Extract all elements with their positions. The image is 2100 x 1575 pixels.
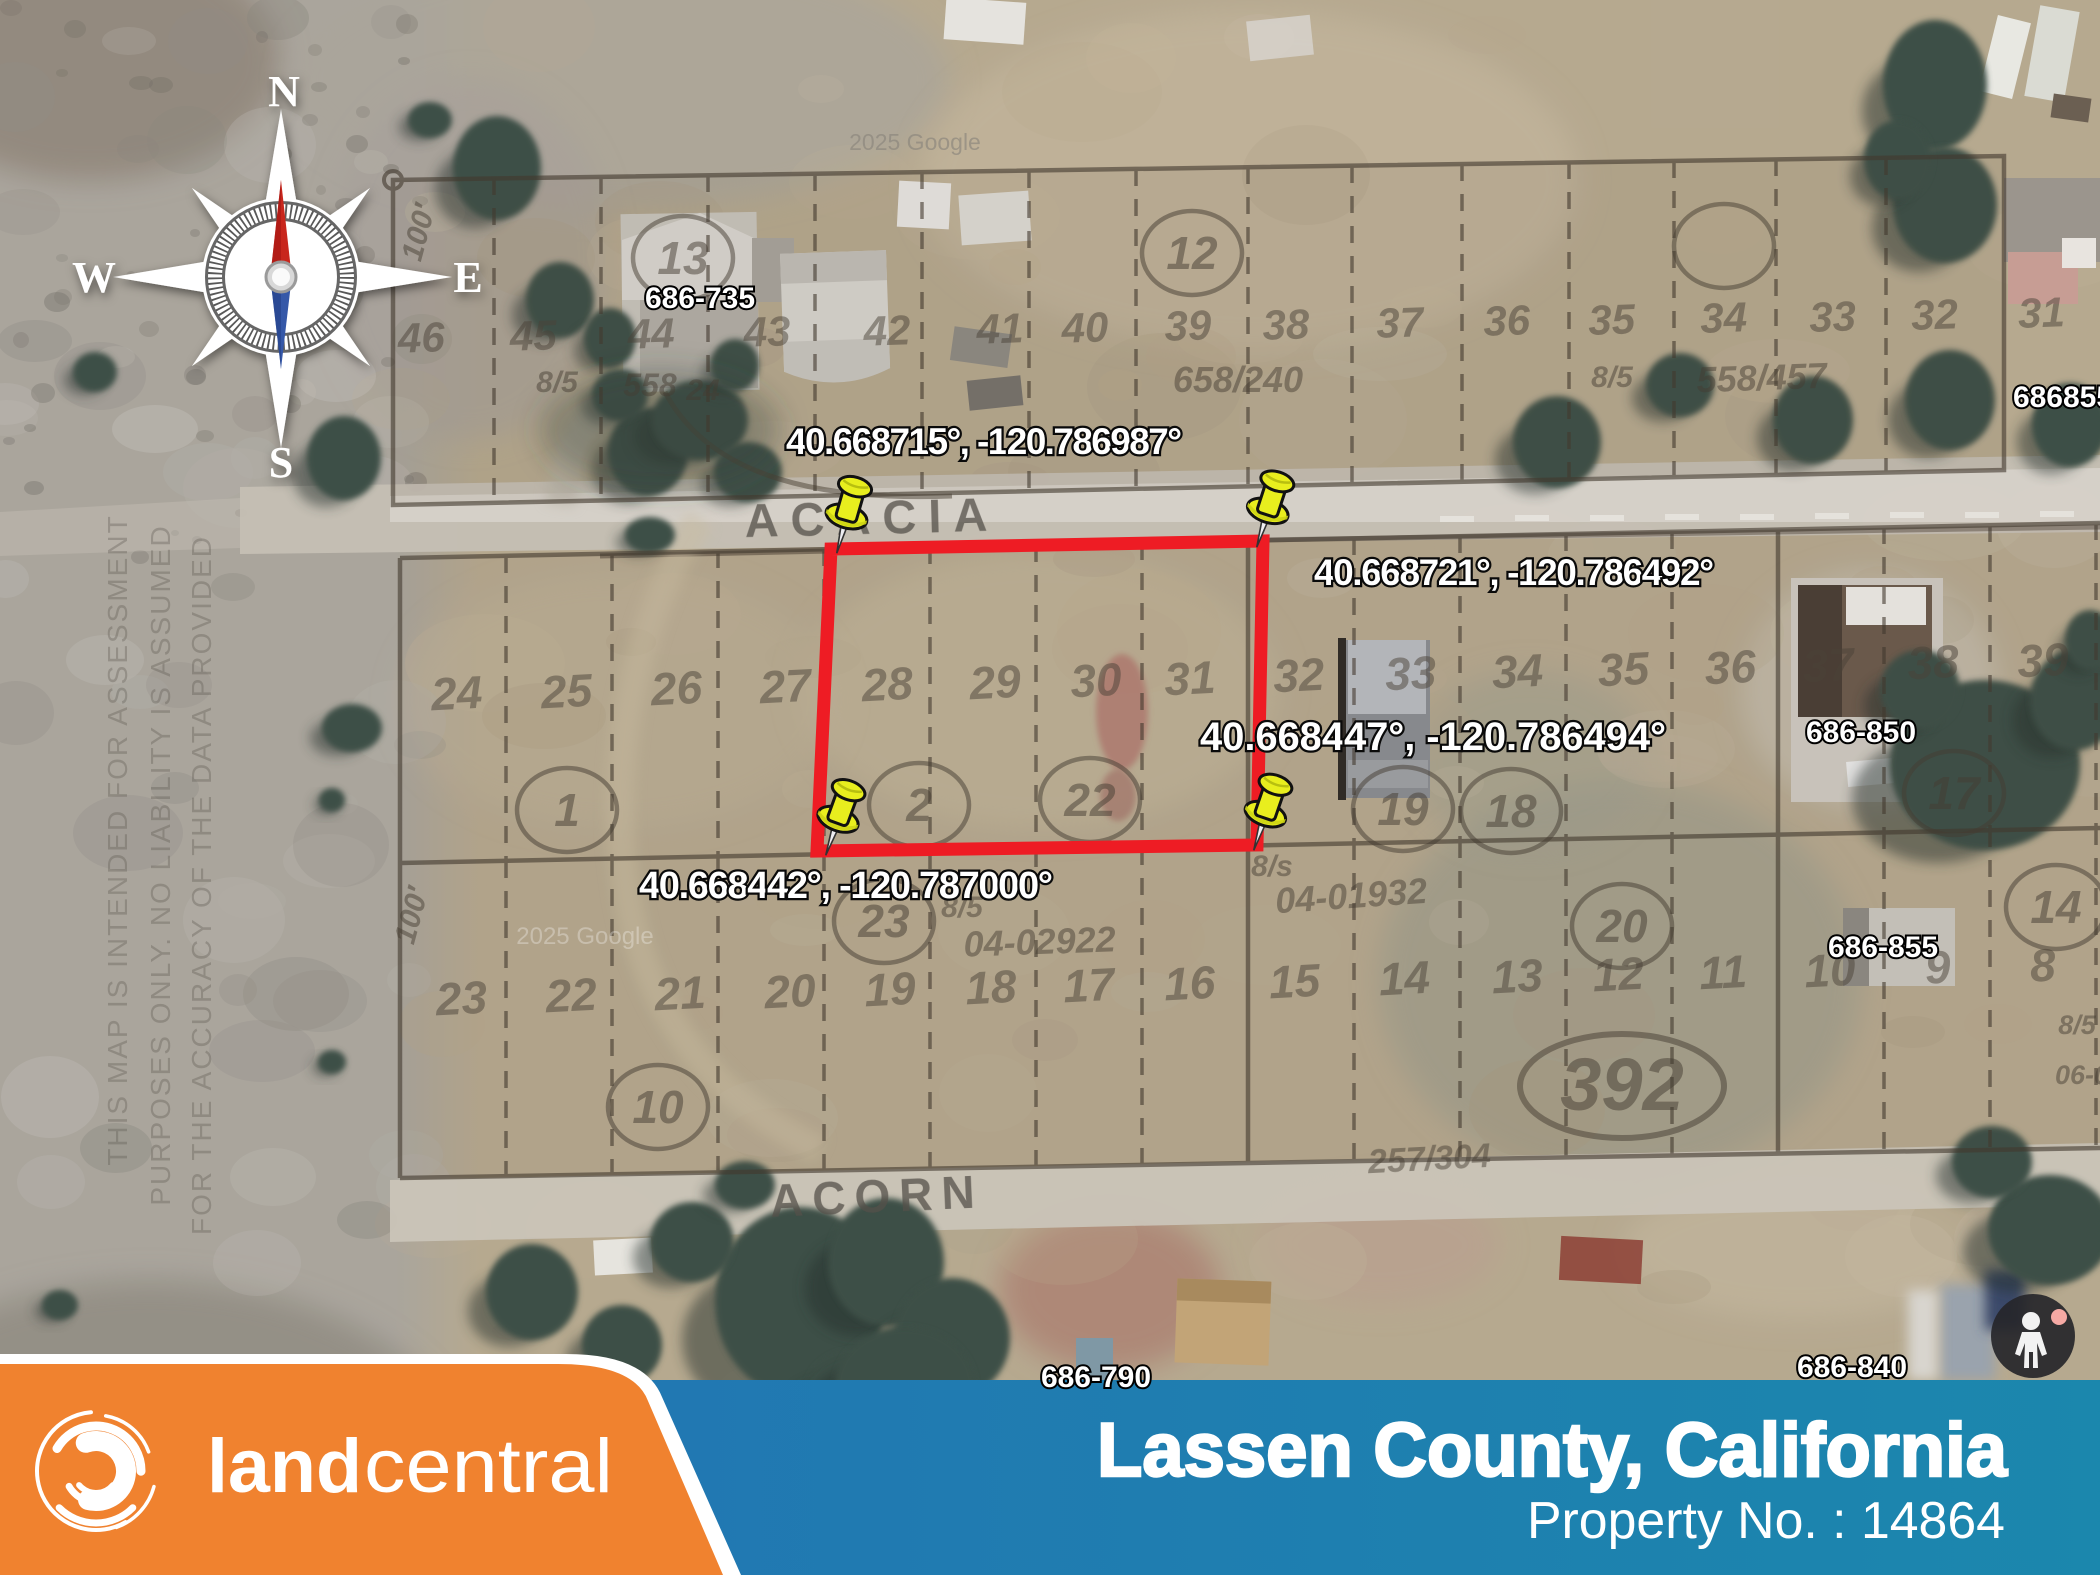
svg-text:24: 24 [429,666,484,721]
svg-text:2025 Google: 2025 Google [849,129,981,155]
svg-text:44: 44 [626,309,675,358]
svg-text:2: 2 [905,779,932,831]
svg-text:16: 16 [1163,956,1217,1011]
svg-text:558/457: 558/457 [1696,355,1829,401]
svg-text:40.668721°, -120.786492°: 40.668721°, -120.786492° [1314,552,1714,593]
svg-text:38: 38 [1906,635,1960,690]
svg-text:12: 12 [1591,947,1645,1002]
svg-text:22: 22 [1063,774,1116,826]
svg-text:1: 1 [554,784,580,836]
svg-text:19: 19 [863,962,917,1017]
svg-text:14: 14 [1377,951,1431,1006]
svg-text:12: 12 [1166,227,1218,279]
svg-text:17: 17 [1928,767,1982,819]
svg-text:PURPOSES ONLY. NO LIABILITY IS: PURPOSES ONLY. NO LIABILITY IS ASSUMED [145,524,176,1205]
svg-text:33: 33 [1808,292,1856,341]
svg-text:19: 19 [1377,783,1429,835]
svg-text:28: 28 [859,657,914,712]
svg-text:Lassen County, California: Lassen County, California [1097,1408,2008,1493]
svg-text:04-02922: 04-02922 [963,918,1116,964]
svg-text:W: W [72,253,116,302]
svg-text:21: 21 [652,966,707,1021]
svg-text:06-0: 06-0 [2055,1060,2100,1090]
svg-text:686855: 686855 [2013,381,2100,414]
svg-text:257/304: 257/304 [1366,1137,1492,1181]
svg-text:46: 46 [396,313,446,362]
svg-text:41: 41 [975,304,1024,353]
svg-text:40: 40 [1060,303,1109,352]
svg-text:40.668447°, -120.786494°: 40.668447°, -120.786494° [1200,715,1666,759]
svg-text:42: 42 [862,306,911,355]
svg-text:32: 32 [1910,290,1958,339]
svg-text:686-840: 686-840 [1797,1351,1907,1384]
svg-text:20: 20 [1595,900,1648,952]
svg-text:land: land [207,1424,362,1509]
svg-text:40.668715°, -120.786987°: 40.668715°, -120.786987° [786,421,1182,462]
svg-text:31: 31 [1163,651,1217,706]
svg-text:FOR THE ACCURACY OF THE DATA P: FOR THE ACCURACY OF THE DATA PROVIDED [186,535,217,1235]
svg-text:13: 13 [657,232,709,284]
svg-text:35: 35 [1596,642,1651,697]
svg-text:39: 39 [1164,301,1213,350]
svg-text:26: 26 [648,661,703,716]
svg-text:22: 22 [543,968,598,1023]
svg-text:25: 25 [539,664,595,719]
svg-text:45: 45 [508,311,558,360]
svg-text:10: 10 [632,1081,684,1133]
svg-text:20: 20 [762,964,817,1019]
svg-text:34: 34 [1699,293,1747,342]
svg-text:38: 38 [1262,300,1311,349]
svg-text:36: 36 [1483,296,1532,345]
svg-text:23: 23 [433,971,488,1026]
svg-text:17: 17 [1062,958,1118,1013]
svg-text:40.668442°, -120.787000°: 40.668442°, -120.787000° [639,865,1053,907]
svg-text:558: 558 [623,367,677,403]
svg-text:35: 35 [1587,295,1636,344]
svg-text:37: 37 [1376,298,1426,347]
svg-text:central: central [364,1424,613,1509]
svg-text:34: 34 [1491,644,1545,699]
svg-text:ACACIA: ACACIA [744,488,1000,548]
svg-text:686-855: 686-855 [1828,931,1938,964]
svg-text:686-790: 686-790 [1041,1361,1151,1394]
svg-text:2025 Google: 2025 Google [516,923,653,950]
svg-text:15: 15 [1268,954,1323,1009]
svg-text:32: 32 [1272,648,1326,703]
svg-text:S: S [269,438,293,487]
svg-text:30: 30 [1069,653,1123,708]
svg-text:13: 13 [1490,949,1544,1004]
svg-text:8/s: 8/s [1251,850,1293,883]
svg-text:14: 14 [2030,881,2081,933]
svg-text:686-735: 686-735 [645,282,755,315]
svg-text:37: 37 [1801,638,1857,693]
svg-text:29: 29 [967,655,1022,710]
svg-text:18: 18 [1485,785,1537,837]
svg-text:33: 33 [1384,646,1438,701]
svg-text:8/5: 8/5 [1591,361,1634,394]
svg-text:11: 11 [1698,945,1748,999]
svg-text:E: E [453,253,482,302]
svg-text:392: 392 [1560,1043,1683,1126]
svg-text:686-850: 686-850 [1806,716,1916,749]
svg-text:658/240: 658/240 [1173,359,1303,400]
svg-text:39: 39 [2016,633,2070,688]
svg-text:THIS MAP IS INTENDED FOR ASSES: THIS MAP IS INTENDED FOR ASSESSMENT [102,514,133,1165]
svg-text:8/5: 8/5 [2058,1010,2097,1040]
svg-text:24: 24 [685,374,720,407]
svg-text:ACORN: ACORN [769,1165,985,1226]
svg-text:18: 18 [964,960,1018,1015]
svg-text:27: 27 [757,659,814,714]
svg-text:8/5: 8/5 [536,366,579,399]
svg-text:31: 31 [2017,288,2065,337]
svg-text:36: 36 [1703,640,1757,695]
svg-text:Property No. : 14864: Property No. : 14864 [1527,1492,2005,1550]
svg-text:N: N [268,67,300,116]
